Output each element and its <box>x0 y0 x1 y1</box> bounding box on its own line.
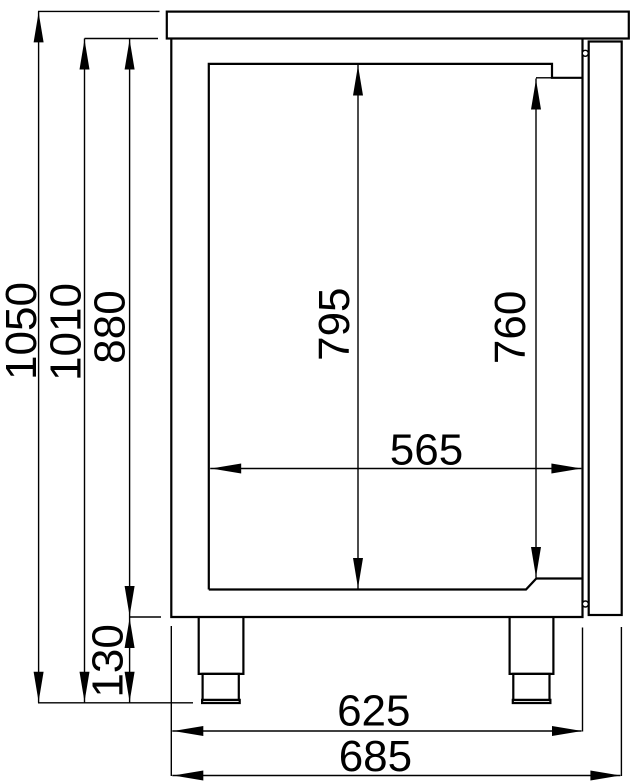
svg-text:565: 565 <box>390 425 463 474</box>
svg-text:1050: 1050 <box>0 282 46 380</box>
svg-text:795: 795 <box>310 287 359 360</box>
svg-text:760: 760 <box>486 291 535 364</box>
svg-text:1010: 1010 <box>41 283 90 381</box>
svg-text:880: 880 <box>86 290 135 363</box>
svg-text:625: 625 <box>337 687 410 736</box>
svg-text:685: 685 <box>339 732 412 781</box>
svg-text:130: 130 <box>83 624 132 697</box>
